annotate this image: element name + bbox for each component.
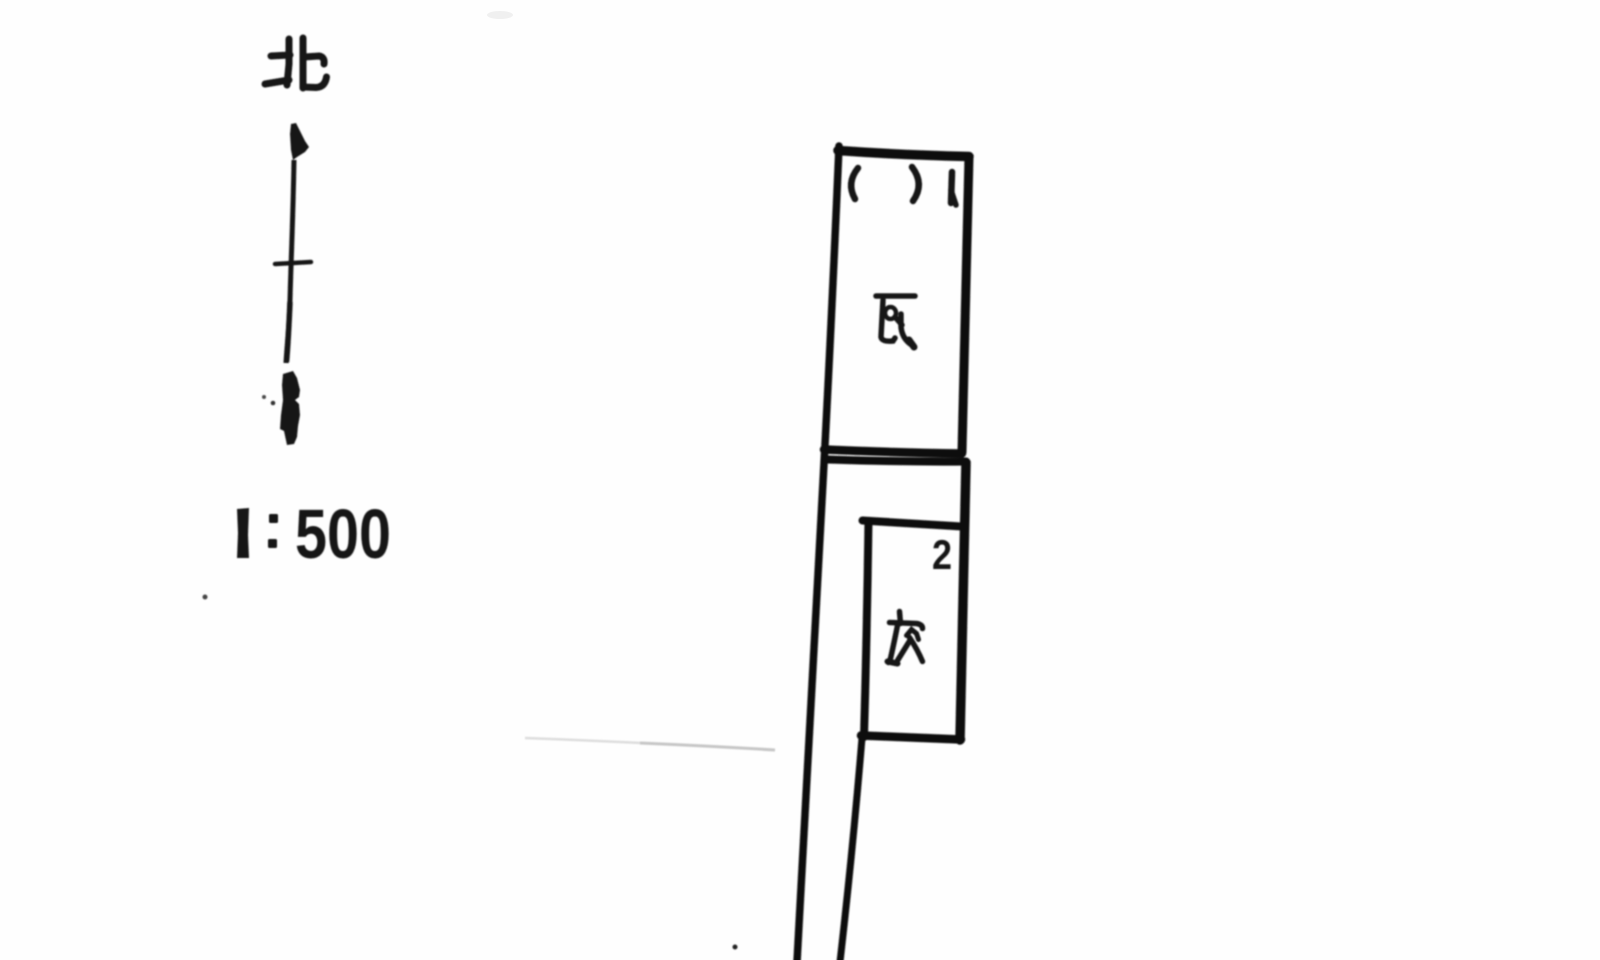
svg-text:2: 2 [932,531,952,578]
svg-text:500: 500 [295,495,391,573]
